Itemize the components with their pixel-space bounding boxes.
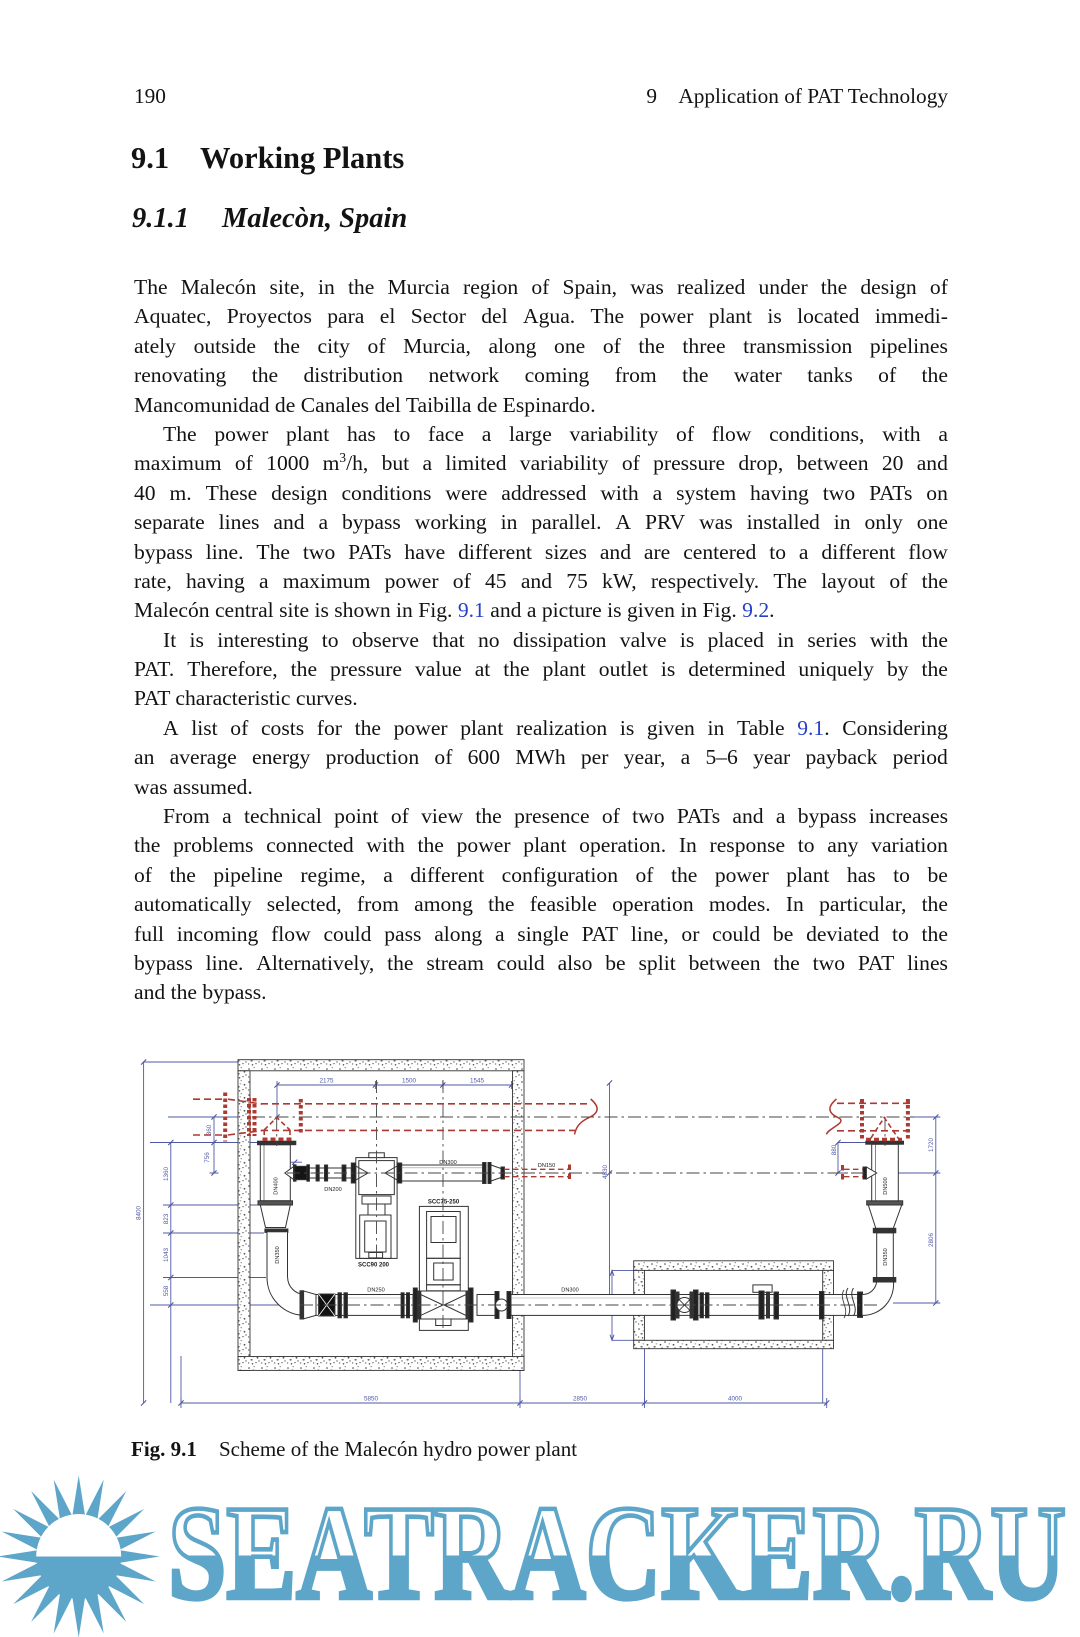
svg-text:SEATRACKER.RU: SEATRACKER.RU [168,1479,1066,1628]
